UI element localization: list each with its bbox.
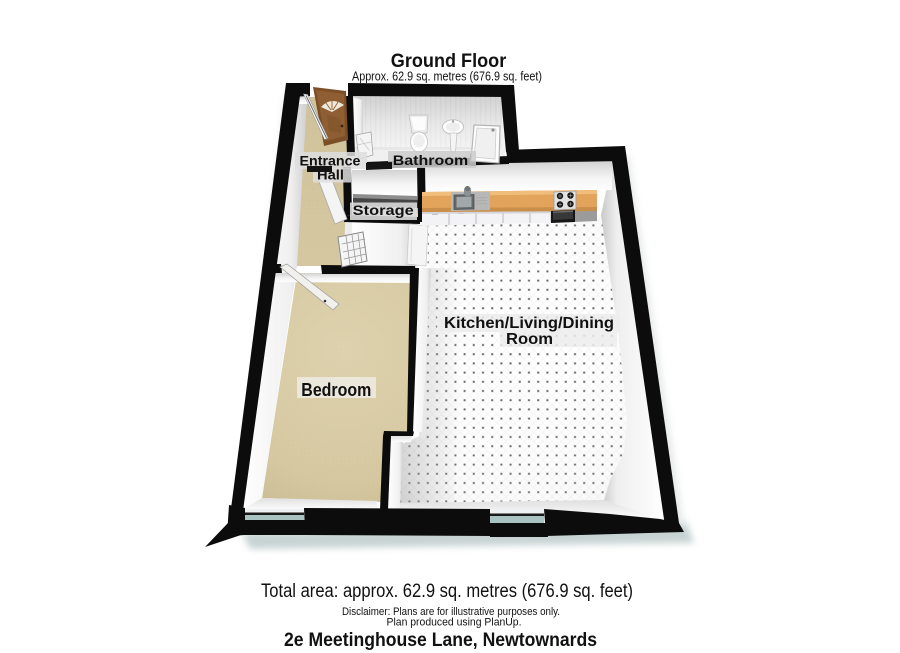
svg-text:Room: Room	[506, 331, 553, 348]
svg-text:Bedroom: Bedroom	[301, 380, 371, 400]
svg-text:Plan produced using PlanUp.: Plan produced using PlanUp.	[387, 617, 522, 629]
svg-text:Total area: approx. 62.9 sq. m: Total area: approx. 62.9 sq. metres (676…	[261, 581, 633, 602]
svg-text:Kitchen/Living/Dining: Kitchen/Living/Dining	[444, 315, 614, 332]
svg-text:Bathroom: Bathroom	[393, 152, 469, 168]
svg-text:Approx. 62.9 sq. metres (676.9: Approx. 62.9 sq. metres (676.9 sq. feet)	[352, 69, 542, 84]
svg-text:2e Meetinghouse Lane, Newtowna: 2e Meetinghouse Lane, Newtownards	[284, 630, 597, 651]
svg-text:Storage: Storage	[353, 202, 414, 218]
